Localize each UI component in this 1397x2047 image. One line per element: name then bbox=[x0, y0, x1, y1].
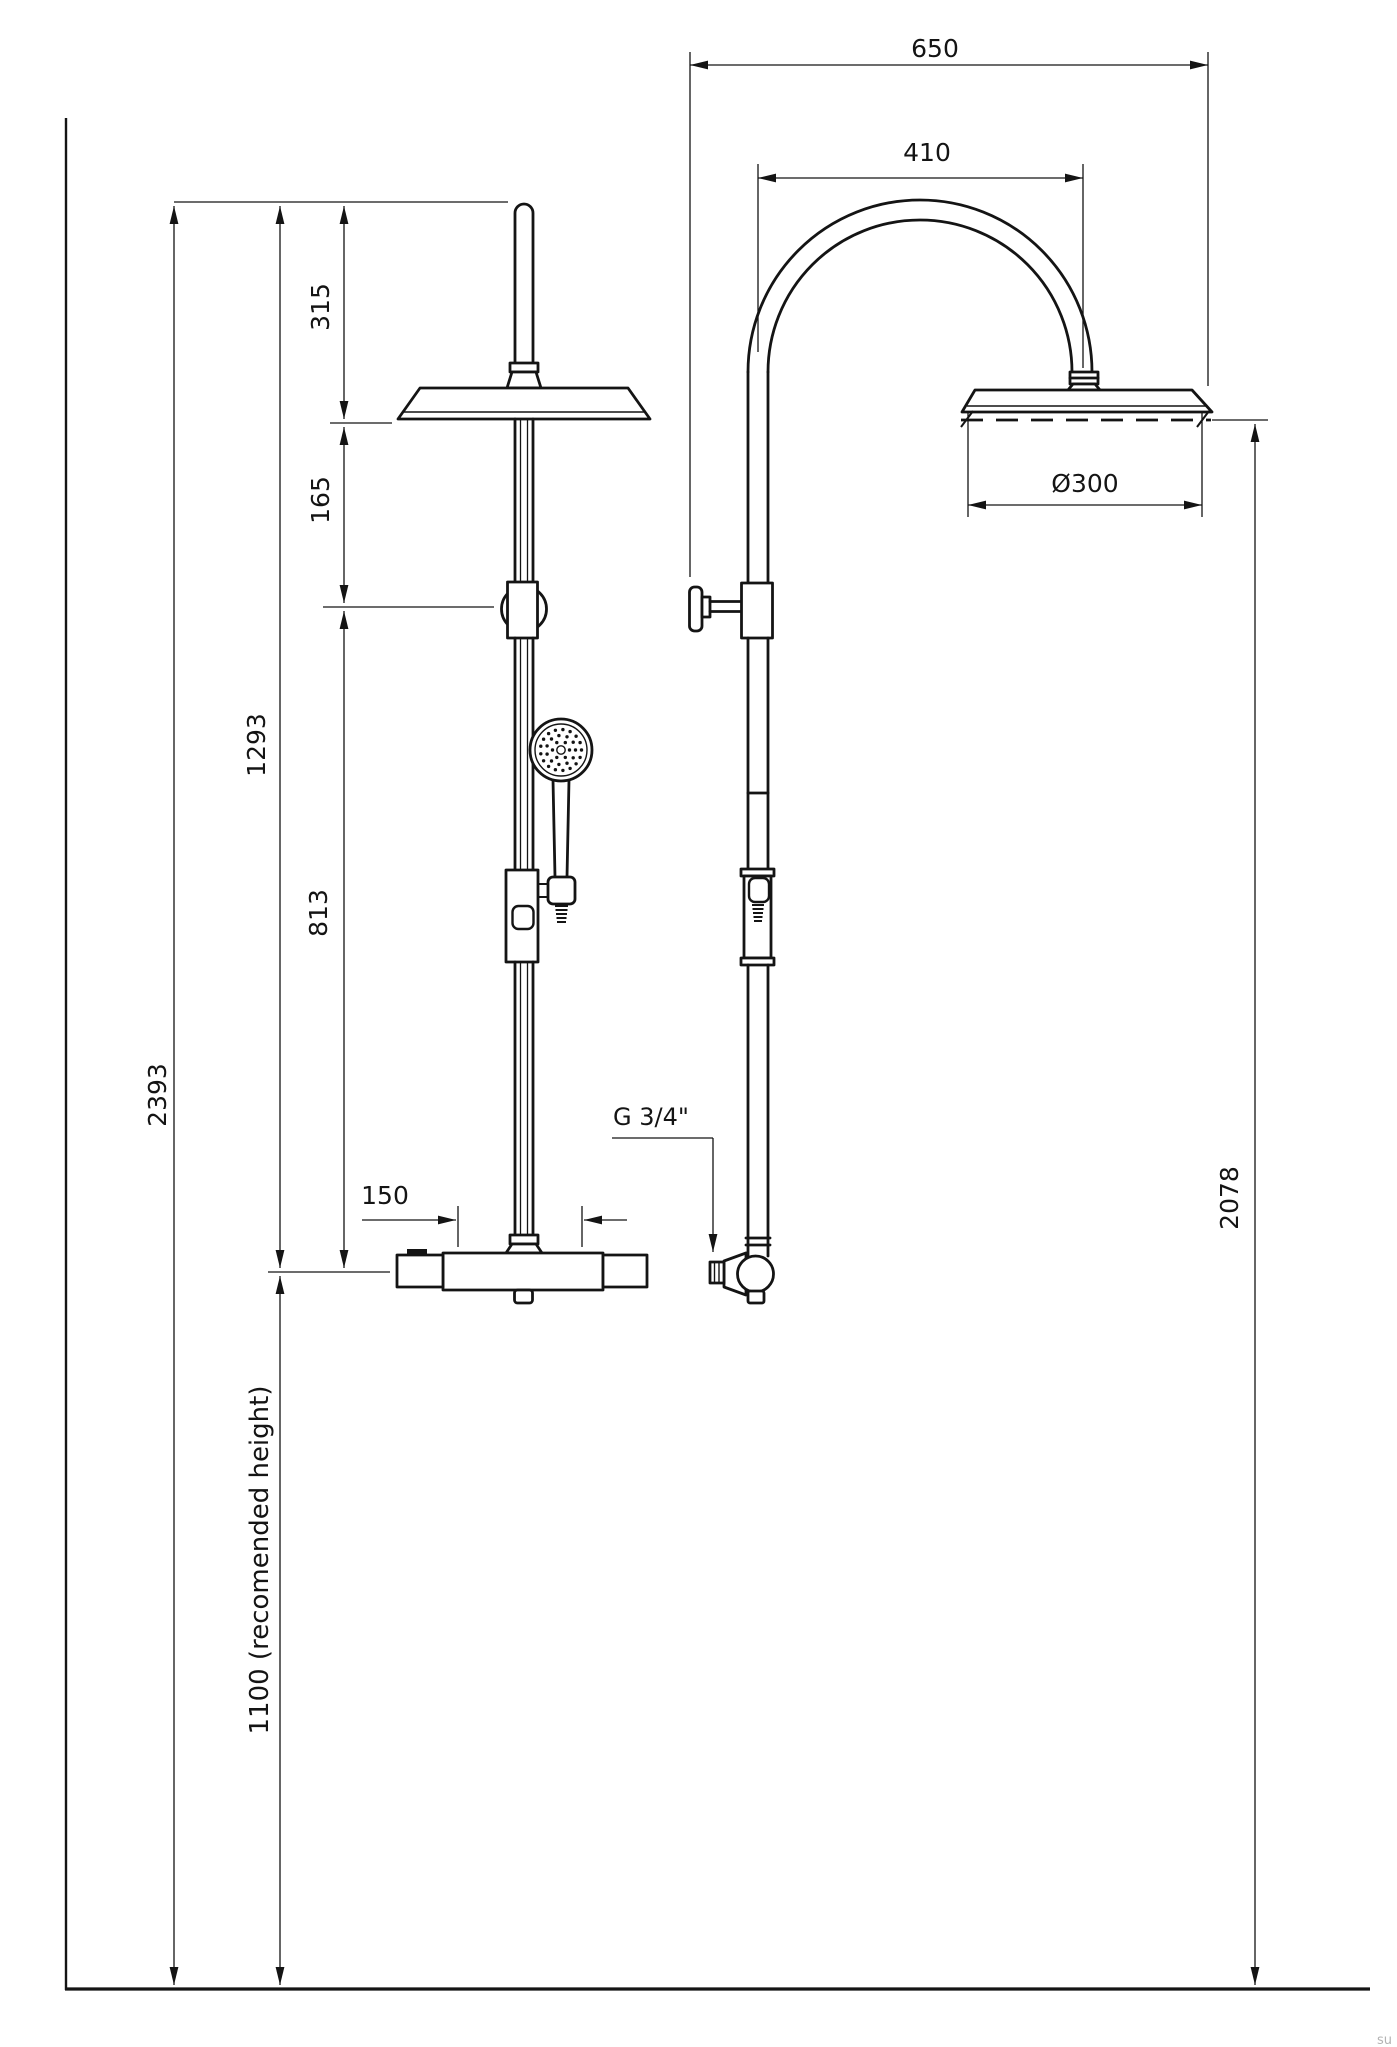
wall-bracket-sleeve bbox=[742, 583, 773, 638]
wall-bracket-knob bbox=[690, 587, 703, 631]
wall-bracket-plate bbox=[702, 597, 710, 617]
hand-shower-handle bbox=[567, 780, 569, 877]
front-pipe-lower bbox=[515, 962, 533, 1235]
front-upper-pipe bbox=[515, 204, 533, 363]
drawing-page: 650 410 Ø300 150 G 3/4" 315 165 1293 813… bbox=[0, 0, 1397, 2047]
side-holder-sleeve bbox=[741, 869, 774, 965]
front-head-flare bbox=[507, 372, 541, 388]
dim-650-label: 650 bbox=[911, 34, 959, 63]
hand-shower-holder bbox=[506, 870, 548, 962]
side-valve bbox=[710, 1253, 774, 1303]
side-valve-outlet bbox=[748, 1291, 764, 1303]
front-overhead-shower bbox=[398, 388, 650, 419]
dim-165-label: 165 bbox=[306, 476, 335, 524]
side-overhead-shower bbox=[961, 372, 1212, 427]
gooseneck-arc-outer bbox=[748, 200, 1092, 372]
dim-813-label: 813 bbox=[304, 889, 333, 937]
side-head-plate bbox=[962, 390, 1212, 412]
thermostatic-mixer bbox=[397, 1249, 647, 1303]
watermark: su bbox=[1377, 2033, 1392, 2047]
front-pipe-mid1 bbox=[515, 419, 533, 582]
side-valve-wall-flange bbox=[710, 1262, 724, 1283]
wall-bracket bbox=[690, 583, 773, 638]
mixer-right-handle bbox=[603, 1255, 647, 1287]
dim-150-label: 150 bbox=[361, 1181, 409, 1210]
dim-315-label: 315 bbox=[306, 283, 335, 331]
dim-2078-label: 2078 bbox=[1215, 1166, 1244, 1230]
dim-2393-label: 2393 bbox=[143, 1063, 172, 1127]
dim-410-label: 410 bbox=[903, 138, 951, 167]
dimension-labels: 650 410 Ø300 150 G 3/4" 315 165 1293 813… bbox=[143, 34, 1244, 1734]
dim-d300-label: Ø300 bbox=[1051, 469, 1118, 498]
gooseneck-arc-inner bbox=[768, 220, 1072, 372]
mixer-hose-outlet bbox=[515, 1290, 533, 1303]
dimension-lines bbox=[174, 52, 1268, 1985]
mixer-body bbox=[443, 1253, 603, 1290]
dim-1100-label: 1100 (recomended height) bbox=[245, 1386, 275, 1735]
hand-shower-handle bbox=[553, 780, 555, 877]
side-view bbox=[690, 200, 1213, 1303]
hand-shower bbox=[530, 719, 592, 877]
dim-1293-label: 1293 bbox=[242, 713, 271, 777]
shower-dimension-drawing: 650 410 Ø300 150 G 3/4" 315 165 1293 813… bbox=[0, 0, 1397, 2047]
hand-shower-elbow bbox=[548, 877, 575, 922]
thread-size-label: G 3/4" bbox=[613, 1103, 689, 1131]
mixer-left-handle bbox=[397, 1255, 443, 1287]
mixer-handle-button bbox=[407, 1249, 427, 1255]
front-slider-knob bbox=[502, 582, 547, 638]
side-valve-body bbox=[738, 1256, 774, 1292]
